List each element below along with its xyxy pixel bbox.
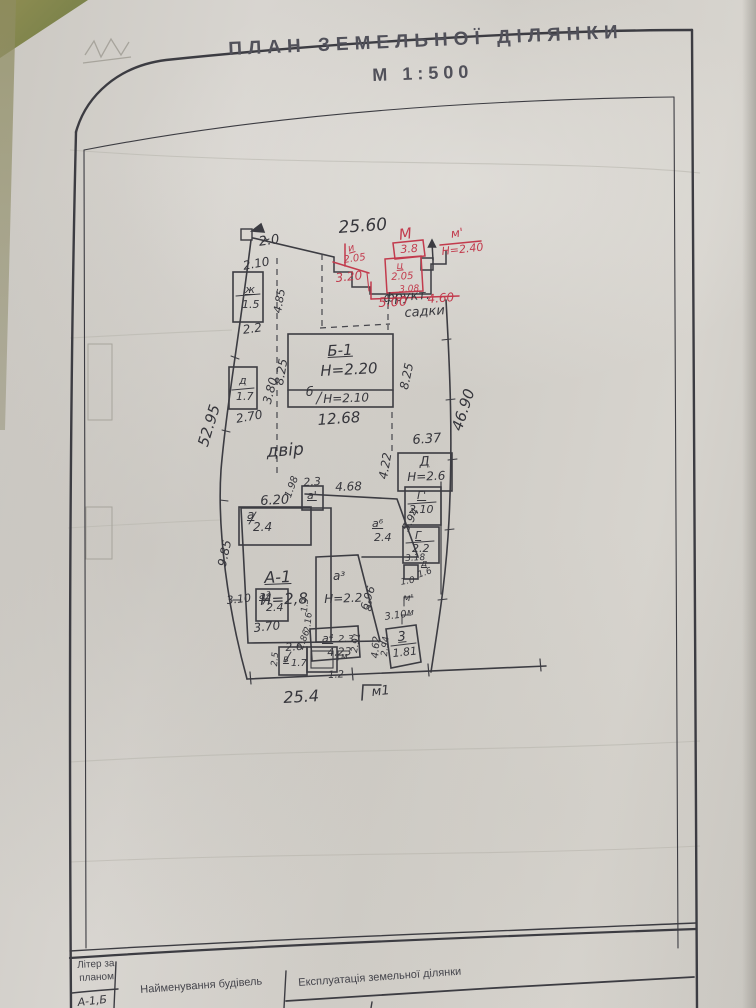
- room-a2-label: а²: [259, 590, 270, 601]
- b1-name: Б-1: [327, 343, 353, 359]
- house-d23: 2.3: [303, 476, 321, 488]
- shed-zh-bottom: 2.2: [242, 321, 263, 336]
- house-d423: 4.23: [327, 646, 352, 658]
- page-frame: [70, 30, 697, 1008]
- table-col1-line2: планом: [79, 972, 114, 984]
- shed-zh-value: 1.5: [242, 299, 260, 310]
- shed-d-letter: д: [239, 375, 247, 386]
- room-a2-value: 2.4: [266, 602, 284, 613]
- north-arrow: [429, 240, 436, 247]
- mark-m1: м1: [371, 684, 390, 699]
- house-d25: 2.5: [271, 652, 281, 667]
- room-a-value: 2.4: [253, 521, 272, 533]
- house-d26: 2.6: [285, 641, 303, 653]
- red-m-label: М: [398, 226, 413, 243]
- dim-corner: 2.0: [258, 233, 280, 249]
- mark-m-a: м: [341, 653, 348, 662]
- bld-d-name: Д: [419, 455, 430, 469]
- table-partial-row: А-1,Б: [77, 994, 108, 1008]
- room-v-label: в: [283, 655, 289, 665]
- house-d468: 4.68: [335, 480, 362, 493]
- red-308: 3.08: [399, 285, 419, 295]
- room-g2-label: Г: [415, 530, 421, 541]
- red-500: 5.00: [378, 295, 408, 309]
- b1-height: Н=2.20: [320, 361, 378, 379]
- red-460: 4.60: [427, 291, 454, 305]
- shed-zh-outline: [233, 272, 263, 322]
- room-g1-label: Г': [417, 490, 426, 501]
- house-d620: 6.20: [260, 493, 290, 507]
- house-d12: 1.2: [328, 670, 344, 681]
- room-a3-height: Н=2.2: [324, 592, 363, 605]
- room-g1-value: 2.10: [409, 504, 434, 515]
- page-scale: М 1:500: [372, 62, 474, 84]
- wrinkle-lines: [68, 150, 700, 862]
- plan-drawing: [0, 0, 756, 1008]
- mark-m-b: м: [407, 609, 414, 618]
- shed-d-value: 1.7: [236, 391, 254, 402]
- b1-strip-letter: б: [306, 386, 313, 398]
- dim-bottom: 25.4: [283, 688, 319, 706]
- dim-top: 25.60: [338, 217, 388, 237]
- room-a6-value: 2.4: [374, 532, 392, 543]
- house-name: А-1: [264, 569, 291, 586]
- red-38: 3.8: [400, 243, 418, 255]
- red-m-prime-label: м': [450, 226, 464, 240]
- scanned-land-plot-document: ПЛАН ЗЕМЕЛЬНОЇ ДІЛЯНКИ М 1:500 25.60 2.0…: [0, 0, 756, 1008]
- house-d13: 1.3: [301, 598, 311, 613]
- table-rules: [70, 923, 696, 1008]
- b1-bottom-dim: 12.68: [317, 410, 361, 428]
- yard-label: двір: [266, 441, 304, 461]
- room-v-value: 1.7: [291, 659, 307, 669]
- red-320: 3.20: [335, 269, 363, 284]
- room-a-prime-label: а': [307, 490, 317, 501]
- bld-d-top-dim: 6.37: [412, 432, 442, 447]
- b1-strip-height: Н=2.10: [323, 391, 369, 405]
- room-a4-label: а⁴: [322, 633, 333, 644]
- house-d370: 3.70: [253, 619, 281, 634]
- pencil-w-scribble: [85, 39, 129, 57]
- right-d294: 2.94: [381, 636, 392, 657]
- room-a3-label: а³: [333, 570, 345, 582]
- bld-d-height: Н=2.6: [407, 470, 446, 483]
- shed-zh-letter: ж: [245, 284, 255, 295]
- orchard-label-2: садки: [404, 304, 445, 320]
- pencil-marks: [83, 39, 131, 559]
- table-col1-line1: Літер за: [77, 959, 115, 971]
- house-d310-left: 3.10: [226, 592, 252, 606]
- room-3-value: 1.81: [392, 645, 418, 659]
- red-c-value: 2.05: [391, 272, 414, 283]
- room-3-label: 3: [397, 630, 407, 644]
- room-a6-label: а⁶: [372, 518, 383, 529]
- mark-m-prime-small: м': [403, 594, 413, 604]
